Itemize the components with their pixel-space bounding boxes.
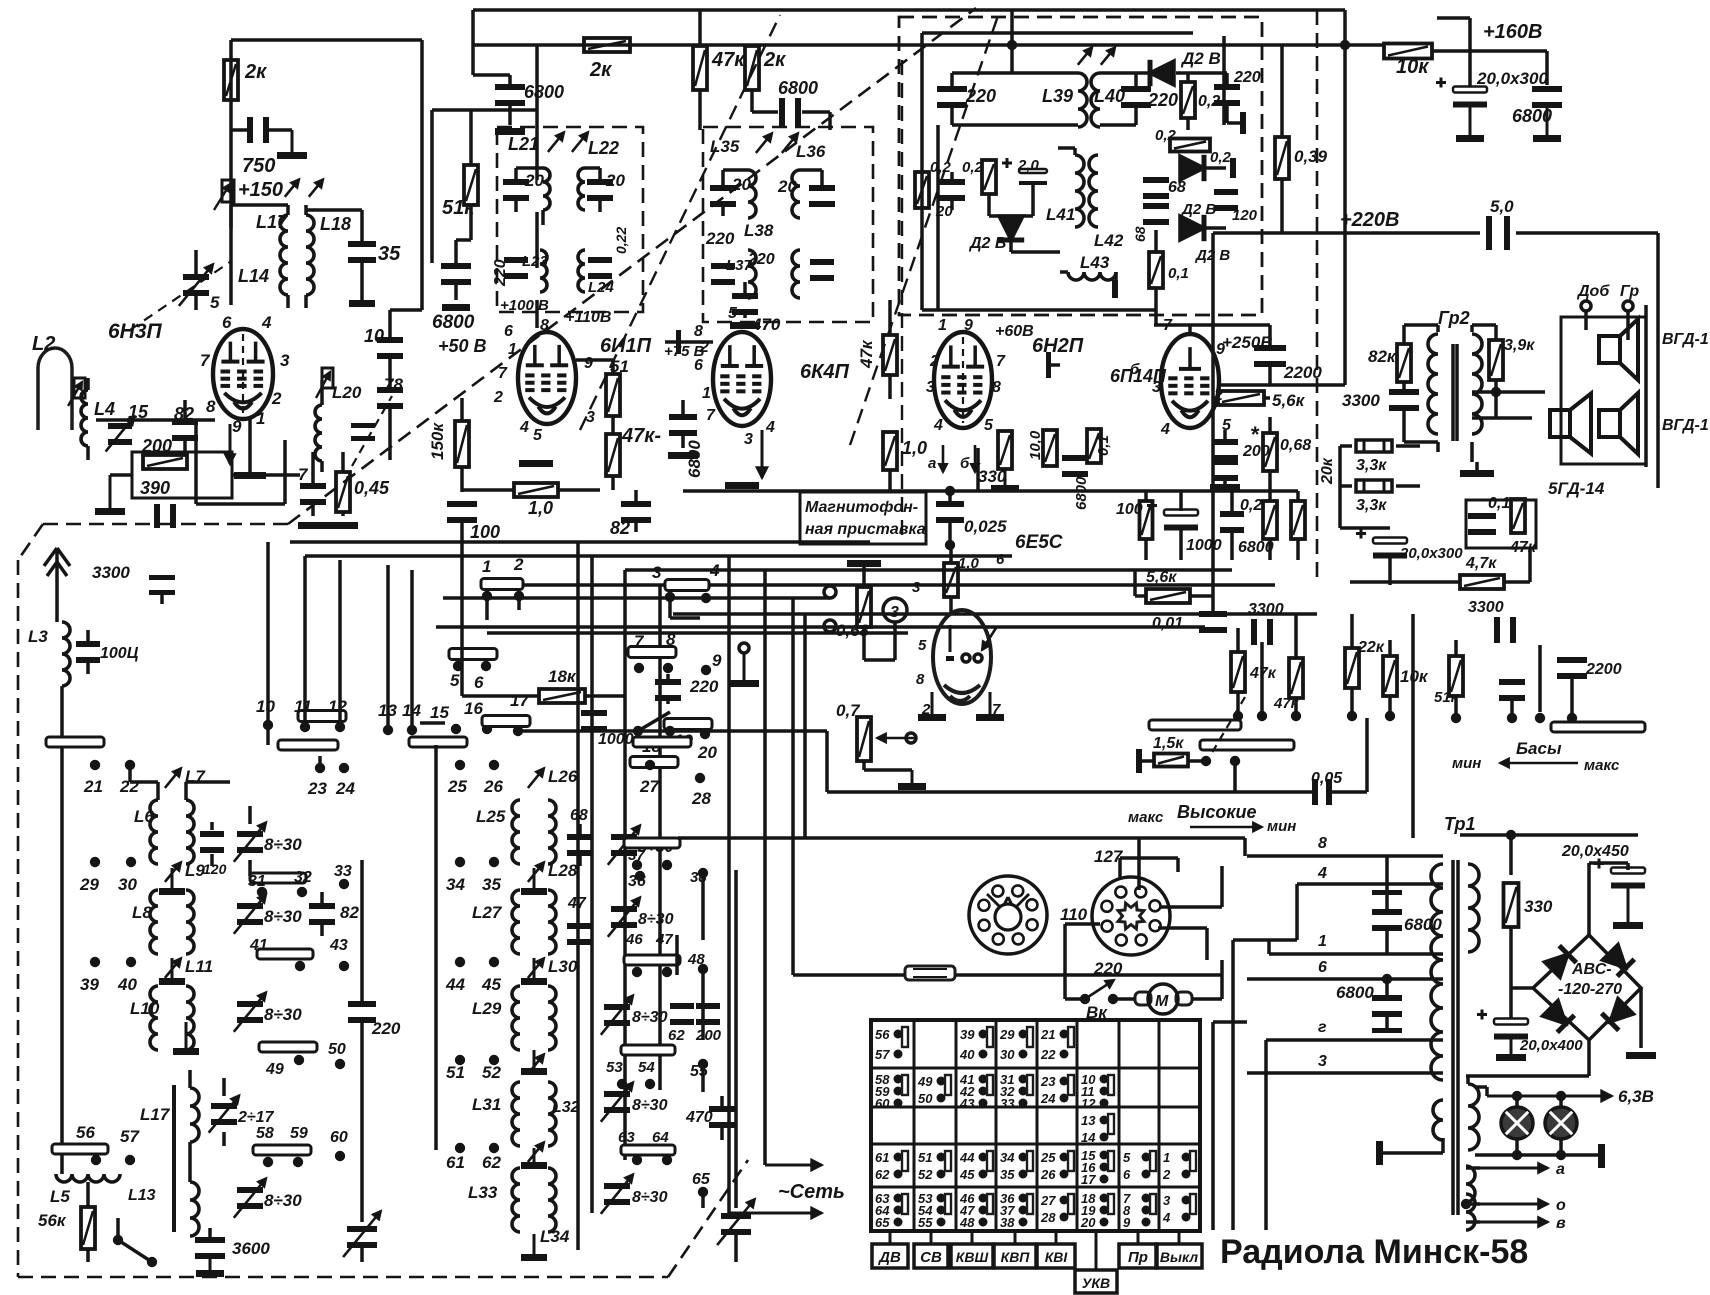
svg-text:57: 57 (875, 1047, 890, 1062)
svg-text:18к: 18к (548, 667, 577, 686)
svg-text:1: 1 (482, 557, 491, 576)
svg-text:65: 65 (692, 1171, 711, 1188)
svg-text:8÷30: 8÷30 (632, 1097, 668, 1114)
svg-text:6: 6 (996, 551, 1005, 568)
svg-text:L40: L40 (1094, 86, 1125, 106)
svg-text:а: а (928, 455, 936, 472)
svg-text:Доб: Доб (1576, 283, 1610, 300)
svg-text:0,1: 0,1 (1168, 265, 1189, 282)
svg-text:0,45: 0,45 (354, 478, 390, 498)
svg-text:20: 20 (1080, 1215, 1096, 1230)
svg-text:L17: L17 (140, 1105, 171, 1124)
svg-text:8: 8 (694, 323, 703, 340)
svg-text:КВШ: КВШ (956, 1249, 989, 1265)
svg-text:23: 23 (1040, 1074, 1056, 1089)
svg-text:2÷17: 2÷17 (237, 1109, 275, 1126)
svg-text:9: 9 (1123, 1215, 1131, 1230)
svg-text:7: 7 (1163, 317, 1173, 334)
svg-text:4: 4 (933, 417, 943, 434)
svg-text:ная приставка: ная приставка (805, 521, 926, 538)
svg-text:0,22: 0,22 (613, 227, 629, 254)
svg-text:0,2: 0,2 (930, 159, 952, 176)
svg-text:3: 3 (1163, 1193, 1171, 1208)
svg-text:6: 6 (474, 673, 484, 692)
svg-text:Высокие: Высокие (1177, 802, 1257, 822)
svg-text:+150: +150 (238, 179, 283, 201)
svg-text:220: 220 (705, 229, 735, 248)
svg-text:L3: L3 (28, 627, 48, 646)
svg-text:6800: 6800 (1073, 476, 1090, 510)
svg-text:20,0х400: 20,0х400 (1519, 1037, 1583, 1054)
svg-text:2: 2 (271, 389, 282, 408)
svg-text:0,2: 0,2 (962, 159, 984, 176)
svg-text:64: 64 (652, 1129, 669, 1146)
svg-text:56: 56 (76, 1123, 95, 1142)
svg-text:50: 50 (918, 1091, 933, 1106)
svg-text:7: 7 (706, 407, 716, 424)
svg-text:L32: L32 (552, 1099, 580, 1116)
svg-text:Басы: Басы (1516, 739, 1562, 758)
svg-text:L42: L42 (1094, 231, 1124, 250)
svg-text:24: 24 (335, 779, 355, 798)
svg-text:5,6к: 5,6к (1272, 391, 1306, 410)
svg-text:6: 6 (1318, 959, 1327, 976)
svg-text:L43: L43 (1080, 253, 1110, 272)
svg-text:330: 330 (978, 467, 1007, 486)
svg-text:1: 1 (938, 317, 947, 334)
svg-text:3: 3 (1152, 379, 1161, 396)
svg-text:47к: 47к (1509, 539, 1537, 556)
svg-text:20: 20 (731, 175, 751, 194)
svg-text:2200: 2200 (1283, 363, 1322, 382)
svg-text:L20: L20 (332, 383, 362, 402)
svg-text:60: 60 (875, 1096, 890, 1111)
svg-text:1000: 1000 (598, 731, 634, 748)
svg-text:2к: 2к (589, 59, 612, 81)
svg-text:5,0: 5,0 (1490, 197, 1514, 216)
svg-text:2: 2 (1162, 1167, 1171, 1182)
svg-text:6800: 6800 (1336, 983, 1374, 1002)
svg-text:6,3В: 6,3В (1618, 1087, 1654, 1106)
svg-text:8: 8 (992, 379, 1001, 396)
svg-text:7: 7 (634, 632, 645, 651)
svg-text:9: 9 (584, 355, 593, 372)
svg-text:8÷30: 8÷30 (632, 1009, 668, 1026)
svg-text:78: 78 (384, 375, 403, 394)
svg-text:32: 32 (294, 869, 312, 886)
svg-text:9: 9 (232, 417, 242, 436)
svg-text:220: 220 (1233, 69, 1261, 86)
svg-text:16: 16 (464, 699, 483, 718)
svg-text:20: 20 (605, 171, 625, 190)
svg-text:26: 26 (1040, 1167, 1056, 1182)
svg-text:56: 56 (875, 1027, 890, 1042)
svg-text:0,2: 0,2 (1210, 149, 1232, 166)
svg-text:10: 10 (256, 697, 275, 716)
svg-text:10,0: 10,0 (1027, 430, 1044, 460)
svg-text:6К4П: 6К4П (800, 361, 850, 383)
svg-text:L11: L11 (185, 957, 213, 976)
svg-text:1: 1 (508, 341, 517, 358)
svg-text:28: 28 (1040, 1210, 1056, 1225)
svg-text:L14: L14 (238, 266, 269, 286)
svg-text:5: 5 (1123, 1150, 1131, 1165)
svg-text:20: 20 (777, 177, 797, 196)
svg-text:7: 7 (498, 365, 508, 382)
svg-text:макс: макс (1128, 809, 1164, 826)
svg-text:0,1: 0,1 (1488, 495, 1510, 512)
svg-text:58: 58 (256, 1125, 274, 1142)
svg-text:20,0х450: 20,0х450 (1561, 843, 1629, 860)
svg-text:68: 68 (1168, 179, 1186, 196)
svg-text:61: 61 (446, 1153, 465, 1172)
svg-text:17: 17 (1081, 1172, 1096, 1187)
svg-text:29: 29 (79, 875, 99, 894)
svg-text:+160В: +160В (1483, 21, 1543, 43)
svg-text:L6: L6 (134, 807, 154, 826)
svg-text:5: 5 (450, 671, 460, 690)
svg-text:L4: L4 (94, 399, 115, 419)
svg-text:КВI: КВI (1045, 1249, 1069, 1265)
svg-text:34: 34 (1000, 1150, 1015, 1165)
svg-text:56к: 56к (38, 1211, 67, 1230)
svg-text:3: 3 (586, 409, 595, 426)
svg-text:3: 3 (652, 563, 662, 582)
svg-text:L18: L18 (320, 214, 351, 234)
svg-text:2к: 2к (763, 49, 786, 71)
svg-text:3300: 3300 (1248, 601, 1284, 618)
svg-text:1: 1 (1318, 933, 1327, 950)
svg-text:L13: L13 (128, 1187, 156, 1204)
svg-text:25: 25 (447, 777, 467, 796)
svg-text:47к: 47к (857, 339, 876, 369)
svg-text:Тр1: Тр1 (1444, 814, 1476, 834)
svg-text:51: 51 (446, 1063, 465, 1082)
svg-text:L34: L34 (540, 1227, 570, 1246)
svg-text:8: 8 (206, 397, 216, 416)
svg-text:6800: 6800 (432, 312, 475, 333)
svg-text:33: 33 (1000, 1096, 1015, 1111)
svg-text:+60В: +60В (995, 323, 1034, 340)
svg-text:15: 15 (430, 703, 449, 722)
svg-text:220: 220 (747, 251, 775, 268)
svg-text:0,2: 0,2 (1155, 127, 1177, 144)
svg-text:59: 59 (290, 1125, 308, 1142)
svg-text:61: 61 (875, 1150, 889, 1165)
svg-text:УКВ: УКВ (1082, 1275, 1110, 1291)
svg-text:82к: 82к (1368, 347, 1397, 366)
svg-text:СВ: СВ (920, 1249, 942, 1266)
svg-text:40: 40 (117, 975, 137, 994)
svg-text:54: 54 (638, 1059, 655, 1076)
svg-text:35: 35 (378, 243, 401, 265)
svg-text:Гр: Гр (1620, 283, 1639, 300)
svg-text:52: 52 (482, 1063, 501, 1082)
svg-text:макс: макс (1584, 757, 1620, 774)
svg-text:37: 37 (628, 847, 645, 864)
svg-text:35: 35 (482, 875, 501, 894)
svg-text:3600: 3600 (232, 1239, 270, 1258)
svg-text:220: 220 (965, 86, 996, 106)
svg-text:~Сеть: ~Сеть (778, 1181, 845, 1203)
svg-text:L33: L33 (468, 1183, 498, 1202)
svg-text:62: 62 (668, 1027, 685, 1044)
svg-text:4,7к: 4,7к (1465, 555, 1497, 572)
svg-text:23: 23 (307, 779, 327, 798)
svg-text:5: 5 (533, 427, 543, 444)
svg-text:29: 29 (999, 1027, 1015, 1042)
svg-text:6800: 6800 (1512, 106, 1552, 126)
svg-text:L21: L21 (508, 134, 539, 154)
svg-text:9: 9 (1216, 341, 1225, 358)
svg-text:L30: L30 (548, 957, 578, 976)
svg-text:17: 17 (510, 691, 530, 710)
svg-text:63: 63 (618, 1129, 635, 1146)
svg-text:55: 55 (918, 1215, 933, 1230)
svg-text:L25: L25 (476, 807, 506, 826)
svg-text:3300: 3300 (92, 563, 130, 582)
svg-text:6800: 6800 (1238, 539, 1274, 556)
svg-text:L28: L28 (548, 861, 578, 880)
svg-text:+50 В: +50 В (438, 336, 487, 356)
svg-text:52: 52 (918, 1167, 933, 1182)
svg-text:7: 7 (200, 351, 211, 370)
svg-text:L35: L35 (710, 137, 740, 156)
svg-text:5: 5 (728, 305, 738, 322)
svg-text:8÷30: 8÷30 (264, 907, 302, 926)
svg-text:о: о (1556, 1197, 1566, 1214)
svg-text:40: 40 (959, 1047, 975, 1062)
svg-text:L9: L9 (185, 861, 205, 880)
svg-text:5: 5 (210, 293, 220, 312)
svg-text:22: 22 (1040, 1047, 1056, 1062)
svg-text:Д2 В: Д2 В (968, 235, 1006, 252)
svg-text:9: 9 (964, 317, 973, 334)
svg-text:Пр: Пр (1128, 1249, 1148, 1266)
svg-text:5,6к: 5,6к (1146, 569, 1177, 586)
svg-text:8÷30: 8÷30 (632, 1189, 668, 1206)
svg-text:3: 3 (890, 604, 899, 621)
svg-text:1,0: 1,0 (902, 438, 927, 458)
svg-text:2200: 2200 (1585, 661, 1622, 678)
svg-text:L17: L17 (256, 212, 288, 232)
svg-text:9: 9 (712, 651, 722, 670)
svg-text:21: 21 (83, 777, 103, 796)
svg-text:L22: L22 (588, 138, 619, 158)
svg-text:200: 200 (695, 1027, 722, 1044)
svg-text:5: 5 (918, 637, 927, 654)
svg-text:1,5к: 1,5к (1153, 735, 1184, 752)
svg-text:Гр2: Гр2 (1438, 308, 1470, 328)
svg-text:24: 24 (1040, 1091, 1056, 1106)
svg-text:0,01: 0,01 (1152, 615, 1183, 632)
svg-text:3: 3 (926, 379, 935, 396)
svg-text:26: 26 (483, 777, 503, 796)
svg-text:25: 25 (1040, 1150, 1056, 1165)
svg-text:L24: L24 (588, 279, 615, 296)
svg-text:4: 4 (1162, 1210, 1171, 1225)
svg-text:39: 39 (80, 975, 99, 994)
svg-text:Магнитофон-: Магнитофон- (805, 499, 918, 516)
svg-text:14: 14 (1081, 1130, 1096, 1145)
svg-text:21: 21 (1040, 1027, 1055, 1042)
svg-text:100: 100 (1116, 501, 1143, 518)
svg-text:L29: L29 (472, 999, 502, 1018)
svg-text:8÷30: 8÷30 (638, 911, 674, 928)
svg-text:43: 43 (329, 937, 348, 954)
svg-text:б: б (960, 455, 970, 472)
svg-text:8: 8 (1318, 835, 1327, 852)
svg-text:20к: 20к (1319, 457, 1336, 485)
svg-text:330: 330 (1524, 897, 1553, 916)
svg-text:0,2: 0,2 (1240, 497, 1262, 514)
svg-text:3: 3 (744, 431, 753, 448)
svg-text:L8: L8 (132, 903, 152, 922)
svg-text:1: 1 (1163, 1150, 1170, 1165)
svg-text:1: 1 (702, 385, 711, 402)
svg-text:390: 390 (140, 478, 170, 498)
svg-text:82: 82 (340, 903, 359, 922)
svg-text:12: 12 (1081, 1096, 1096, 1111)
svg-text:4: 4 (261, 313, 272, 332)
svg-text:Д2 В: Д2 В (1194, 247, 1230, 264)
svg-text:13: 13 (1081, 1113, 1096, 1128)
svg-text:8: 8 (540, 317, 549, 334)
svg-text:L31: L31 (472, 1095, 501, 1114)
svg-text:6800: 6800 (1404, 915, 1442, 934)
svg-text:35: 35 (1000, 1167, 1015, 1182)
svg-text:а: а (1556, 1161, 1565, 1178)
svg-text:50: 50 (328, 1041, 346, 1058)
svg-text:2: 2 (929, 353, 939, 370)
svg-text:38: 38 (1000, 1215, 1015, 1230)
svg-text:Выкл: Выкл (1160, 1249, 1199, 1265)
svg-text:4: 4 (709, 561, 720, 580)
svg-text:М: М (1155, 993, 1169, 1010)
svg-text:6Е5С: 6Е5С (1015, 532, 1063, 553)
svg-text:2: 2 (493, 389, 503, 406)
svg-text:6800: 6800 (778, 78, 818, 98)
svg-text:10: 10 (364, 326, 384, 346)
svg-text:47: 47 (655, 931, 673, 948)
svg-text:68: 68 (570, 807, 588, 824)
svg-text:L38: L38 (744, 221, 774, 240)
svg-text:ВГД-1: ВГД-1 (1662, 417, 1709, 434)
svg-text:150к: 150к (428, 422, 447, 460)
svg-text:мин: мин (1267, 818, 1296, 835)
svg-text:1000: 1000 (1186, 537, 1222, 554)
svg-text:0,68: 0,68 (1280, 437, 1311, 454)
svg-text:57: 57 (120, 1127, 140, 1146)
svg-text:2к: 2к (244, 61, 267, 83)
svg-text:470: 470 (685, 1109, 713, 1126)
svg-text:4: 4 (1317, 865, 1327, 882)
svg-text:L27: L27 (472, 903, 503, 922)
svg-text:2,0: 2,0 (1017, 157, 1040, 174)
svg-text:1,0: 1,0 (958, 555, 980, 572)
svg-text:20: 20 (697, 743, 717, 762)
svg-text:0,025: 0,025 (964, 517, 1007, 536)
svg-text:ВГД-1: ВГД-1 (1662, 331, 1709, 348)
svg-text:3,3к: 3,3к (1356, 497, 1387, 514)
svg-text:10к: 10к (1396, 56, 1429, 78)
svg-text:49: 49 (265, 1061, 284, 1078)
svg-text:20,0х300: 20,0х300 (1476, 69, 1548, 88)
svg-text:АВС-: АВС- (1571, 961, 1612, 978)
svg-text:49: 49 (917, 1074, 933, 1089)
svg-text:220: 220 (371, 1019, 401, 1038)
svg-text:750: 750 (242, 155, 275, 177)
svg-text:0,1: 0,1 (1095, 435, 1112, 456)
svg-text:г: г (1318, 1019, 1327, 1036)
svg-text:8: 8 (666, 630, 676, 649)
svg-text:30: 30 (1000, 1047, 1015, 1062)
svg-text:8: 8 (916, 671, 925, 688)
svg-text:8÷30: 8÷30 (264, 1005, 302, 1024)
svg-text:+75 В: +75 В (664, 343, 705, 360)
svg-text:3: 3 (1318, 1053, 1327, 1070)
svg-text:45: 45 (481, 975, 501, 994)
svg-text:62: 62 (482, 1153, 501, 1172)
svg-text:120: 120 (1232, 207, 1258, 224)
svg-text:L41: L41 (1046, 205, 1075, 224)
svg-text:3,3к: 3,3к (1356, 457, 1387, 474)
svg-text:мин: мин (1452, 755, 1481, 772)
svg-text:Радиола Минск-58: Радиола Минск-58 (1220, 1233, 1528, 1271)
svg-text:220: 220 (689, 677, 719, 696)
svg-text:7: 7 (298, 465, 309, 484)
svg-text:43: 43 (959, 1096, 975, 1111)
svg-text:L26: L26 (548, 767, 578, 786)
svg-text:3: 3 (280, 351, 290, 370)
svg-text:47к-: 47к- (621, 425, 661, 447)
svg-text:46: 46 (625, 931, 643, 948)
svg-text:15: 15 (128, 402, 149, 422)
svg-text:48: 48 (959, 1215, 975, 1230)
svg-text:20: 20 (524, 171, 544, 190)
svg-text:27: 27 (639, 777, 660, 796)
svg-text:+100 В: +100 В (500, 297, 549, 314)
svg-text:4: 4 (1160, 421, 1170, 438)
svg-text:L39: L39 (1042, 86, 1073, 106)
svg-text:6800: 6800 (524, 82, 564, 102)
svg-text:220: 220 (1093, 959, 1123, 978)
svg-text:3,9к: 3,9к (1504, 337, 1535, 354)
svg-text:6: 6 (504, 323, 513, 340)
svg-text:+110В: +110В (565, 309, 611, 326)
svg-text:0,39: 0,39 (1294, 147, 1328, 166)
svg-text:47к: 47к (711, 49, 745, 71)
svg-text:L5: L5 (50, 1187, 70, 1206)
svg-text:8÷30: 8÷30 (264, 835, 302, 854)
svg-text:L36: L36 (796, 142, 826, 161)
svg-text:ДВ: ДВ (877, 1249, 901, 1266)
svg-text:6Н3П: 6Н3П (108, 320, 163, 343)
svg-text:220: 220 (1147, 90, 1178, 110)
svg-text:3300: 3300 (1342, 391, 1380, 410)
svg-text:60: 60 (330, 1129, 348, 1146)
svg-text:34: 34 (446, 875, 465, 894)
svg-text:65: 65 (875, 1215, 890, 1230)
svg-text:6И1П: 6И1П (600, 335, 652, 357)
svg-text:45: 45 (959, 1167, 975, 1182)
svg-text:62: 62 (875, 1167, 890, 1182)
svg-text:1: 1 (256, 409, 265, 428)
svg-text:L10: L10 (130, 999, 160, 1018)
svg-text:6Н2П: 6Н2П (1032, 335, 1084, 357)
svg-text:33: 33 (334, 863, 352, 880)
svg-text:5: 5 (984, 417, 994, 434)
